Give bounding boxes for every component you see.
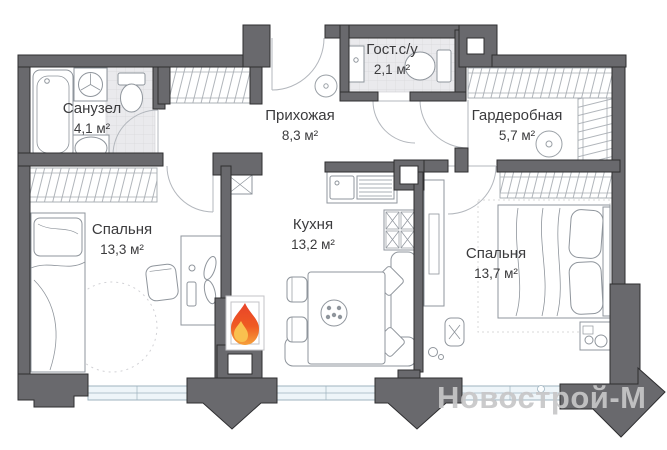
room-area: 13,7 м²: [466, 264, 526, 284]
floor-plan: Санузел 4,1 м² Гост.с/у 2,1 м² Прихожая …: [0, 0, 667, 450]
room-label-guest-wc: Гост.с/у 2,1 м²: [366, 40, 418, 80]
room-name: Гардеробная: [472, 106, 563, 126]
ceiling-light-icon: [315, 75, 337, 97]
room-name: Кухня: [291, 215, 335, 235]
room-name: Гост.с/у: [366, 40, 418, 60]
room-label-bedroom-2: Спальня 13,7 м²: [466, 244, 526, 284]
room-label-kitchen: Кухня 13,2 м²: [291, 215, 335, 255]
fireplace: [226, 296, 264, 350]
room-area: 13,2 м²: [291, 235, 335, 255]
room-area: 4,1 м²: [63, 119, 121, 139]
room-name: Санузел: [63, 99, 121, 119]
room-name: Прихожая: [265, 106, 335, 126]
room-name: Спальня: [466, 244, 526, 264]
room-label-bedroom-1: Спальня 13,3 м²: [92, 220, 152, 260]
room-area: 2,1 м²: [366, 60, 418, 80]
room-area: 8,3 м²: [265, 126, 335, 146]
room-name: Спальня: [92, 220, 152, 240]
room-label-wardrobe: Гардеробная 5,7 м²: [472, 106, 563, 146]
room-area: 13,3 м²: [92, 240, 152, 260]
watermark: Новострой-М: [437, 380, 647, 416]
room-label-bathroom: Санузел 4,1 м²: [63, 99, 121, 139]
room-area: 5,7 м²: [472, 126, 563, 146]
room-label-hallway: Прихожая 8,3 м²: [265, 106, 335, 146]
